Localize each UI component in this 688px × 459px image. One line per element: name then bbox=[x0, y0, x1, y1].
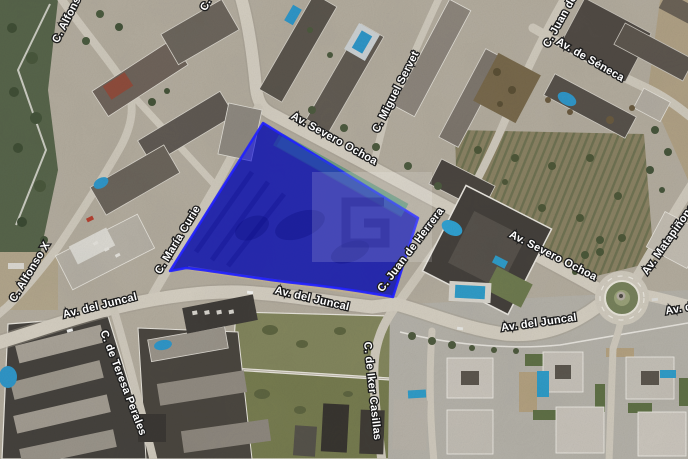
satellite-map-canvas[interactable]: C. Alfonso X C. C. Miguel Servet C. Juan… bbox=[0, 0, 688, 459]
map-svg: C. Alfonso X C. C. Miguel Servet C. Juan… bbox=[0, 0, 688, 459]
